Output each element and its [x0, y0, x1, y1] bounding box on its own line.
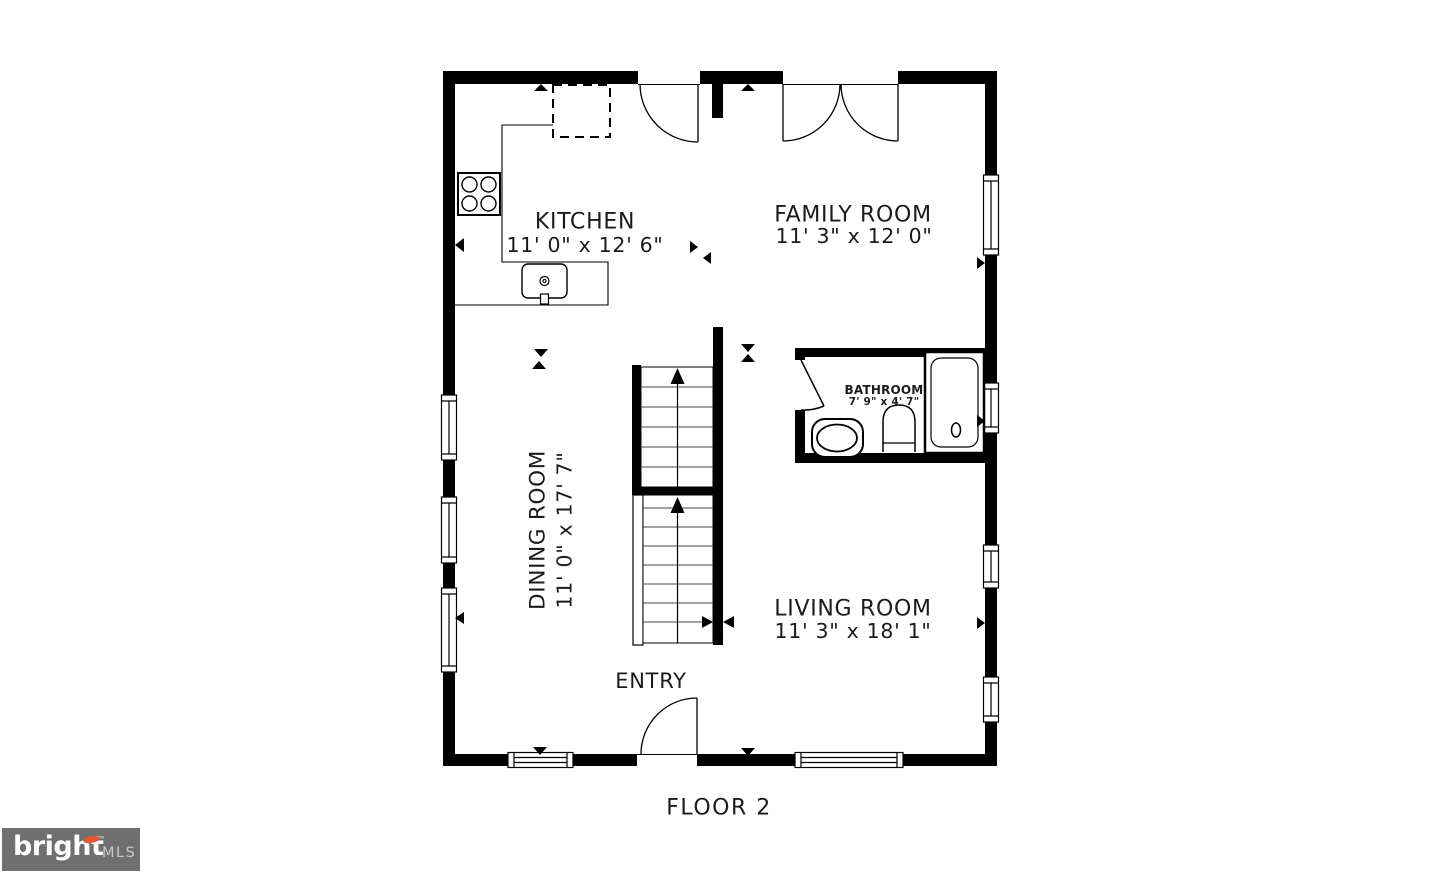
- toilet: [812, 419, 863, 457]
- refrigerator-dashed: [553, 85, 610, 137]
- bathroom-wall-left-lower: [795, 410, 805, 463]
- direction-marker: [723, 616, 734, 628]
- kitchen-dimensions: 11' 0" x 12' 6": [506, 233, 663, 257]
- door-swing-arc: [841, 84, 898, 141]
- floor-title: FLOOR 2: [666, 796, 772, 821]
- wall-stub-top: [712, 84, 723, 118]
- pedestal-sink: [883, 405, 915, 452]
- window-left-3: [442, 588, 457, 672]
- floor-plan-drawing: [0, 0, 1440, 875]
- window-right-3: [984, 545, 999, 588]
- logo-trademark: ™: [98, 835, 106, 844]
- stair-side-channel: [633, 495, 643, 645]
- bathroom-dimensions: 7' 9" x 4' 7": [849, 396, 920, 408]
- tub-drain: [952, 423, 961, 437]
- window-right-bathroom: [984, 383, 999, 433]
- entry-door: [641, 698, 697, 754]
- window-right-4: [984, 677, 999, 722]
- stove: [458, 173, 500, 215]
- floor-plan-page: KITCHEN 11' 0" x 12' 6" FAMILY ROOM 11' …: [0, 0, 1440, 875]
- wall-top-left: [443, 71, 638, 84]
- wall-bottom-4: [903, 754, 997, 766]
- direction-marker: [703, 252, 711, 264]
- wall-left-3: [443, 563, 455, 588]
- dining-room-label: DINING ROOM: [526, 450, 551, 610]
- direction-marker: [741, 344, 755, 352]
- living-room-label: LIVING ROOM: [774, 597, 931, 622]
- bathtub: [925, 352, 984, 453]
- stair-upper-left-wall: [632, 365, 641, 491]
- bright-mls-logo: bright ™ MLS: [2, 828, 140, 871]
- door-swing-arc: [801, 406, 824, 410]
- bathroom-wall-left-upper: [795, 348, 805, 360]
- window-left-1: [442, 395, 457, 460]
- wall-right-3: [985, 433, 997, 545]
- wall-right-5: [985, 722, 997, 766]
- wall-left-2: [443, 460, 455, 497]
- kitchen-label: KITCHEN: [535, 210, 635, 235]
- direction-marker: [455, 238, 464, 252]
- entry-label: ENTRY: [615, 669, 686, 693]
- door-swing-arc: [640, 84, 698, 142]
- wall-right-1: [985, 71, 997, 175]
- staircases: [632, 327, 723, 645]
- kitchen-fixtures: [455, 85, 610, 305]
- wall-left-4: [443, 672, 455, 766]
- door-swing-arc: [641, 698, 697, 754]
- direction-marker: [741, 84, 755, 91]
- direction-marker: [977, 617, 985, 629]
- dining-room-label-group: DINING ROOM 11' 0" x 17' 7": [526, 450, 577, 610]
- window-right-1: [984, 175, 999, 255]
- direction-marker: [534, 349, 548, 357]
- family-room-french-doors: [783, 84, 898, 141]
- stair-right-wall: [713, 327, 723, 645]
- direction-marker: [741, 354, 755, 362]
- wall-bottom-2: [573, 754, 637, 766]
- direction-marker: [690, 241, 698, 253]
- wall-right-2: [985, 255, 997, 383]
- dining-room-dimensions: 11' 0" x 17' 7": [553, 450, 577, 610]
- logo-suffix: MLS: [102, 845, 136, 861]
- door-swing-arc: [783, 84, 840, 141]
- direction-marker: [534, 84, 548, 91]
- stair-mid-wall: [632, 487, 716, 495]
- wall-left-1: [443, 71, 455, 395]
- family-room-dimensions: 11' 3" x 12' 0": [775, 224, 932, 248]
- kitchen-exterior-door: [640, 84, 698, 142]
- direction-marker: [977, 257, 985, 269]
- bathroom-door: [801, 360, 824, 410]
- wall-top-right: [898, 71, 997, 84]
- direction-marker: [532, 361, 546, 369]
- window-bottom-left: [508, 753, 573, 768]
- wall-bottom-3: [697, 754, 795, 766]
- bathroom-label: BATHROOM: [845, 383, 924, 397]
- wall-top-mid: [700, 71, 783, 84]
- living-room-dimensions: 11' 3" x 18' 1": [774, 619, 931, 643]
- door-leaf: [801, 360, 824, 406]
- staircase-lower: [633, 495, 713, 645]
- kitchen-sink: [522, 264, 567, 304]
- window-left-2: [442, 497, 457, 563]
- staircase-upper: [641, 367, 713, 487]
- window-bottom-right: [795, 753, 903, 768]
- wall-right-4: [985, 588, 997, 677]
